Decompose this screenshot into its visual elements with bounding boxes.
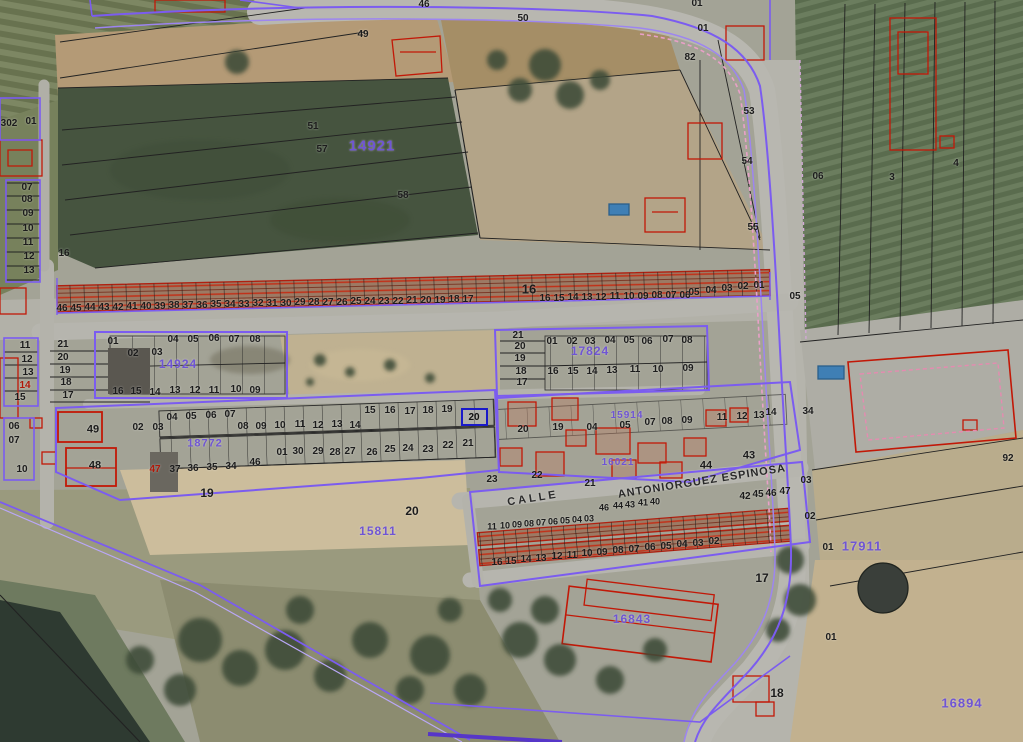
parcel-label: 10	[500, 522, 510, 531]
parcel-label: 31	[266, 299, 277, 309]
parcel-label: 01	[25, 117, 36, 127]
parcel-label: 10	[652, 365, 663, 375]
parcel-label: 30	[292, 447, 303, 457]
parcel-label: 21	[406, 296, 417, 306]
parcel-label: 15	[505, 557, 516, 567]
parcel-label: 24	[402, 444, 413, 454]
parcel-label: 20	[405, 505, 418, 517]
parcel-label: 20	[420, 296, 431, 306]
parcel-label: 04	[676, 540, 687, 550]
street-label: CALLE	[507, 490, 560, 509]
parcel-label: 10	[623, 292, 634, 302]
parcel-label: 03	[152, 423, 163, 433]
parcel-label: 10	[22, 224, 33, 234]
parcel-label: 18	[515, 367, 526, 377]
parcel-label: 13	[535, 554, 546, 564]
parcel-label: 47	[149, 465, 160, 475]
parcel-label: 37	[182, 301, 193, 311]
parcel-label: 16	[539, 294, 550, 304]
parcel-label: 03	[692, 539, 703, 549]
parcel-label: 35	[206, 463, 217, 473]
parcel-label: 20	[517, 425, 528, 435]
parcel-label: 46	[599, 504, 609, 513]
parcel-label: 44	[613, 502, 623, 511]
labels-layer: 3020107080910111213164946500101825157585…	[0, 0, 1023, 742]
parcel-label: 45	[70, 304, 81, 314]
parcel-label: 08	[651, 291, 662, 301]
parcel-label: 09	[249, 386, 260, 396]
parcel-label: 11	[610, 292, 621, 302]
parcel-label: 58	[397, 191, 408, 201]
block-label: 18772	[187, 439, 223, 450]
parcel-label: 42	[739, 492, 750, 502]
parcel-label: 43	[625, 501, 635, 510]
parcel-label: 46	[765, 489, 776, 499]
parcel-label: 41	[638, 499, 648, 508]
parcel-label: 15	[364, 406, 375, 416]
block-label: 15811	[359, 525, 397, 537]
parcel-label: 17	[755, 572, 768, 584]
parcel-label: 19	[514, 354, 525, 364]
parcel-label: 34	[224, 300, 235, 310]
parcel-label: 16	[547, 367, 558, 377]
parcel-label: 34	[225, 462, 236, 472]
block-label: 16894	[941, 697, 982, 710]
parcel-label: 35	[210, 300, 221, 310]
parcel-label: 38	[168, 301, 179, 311]
parcel-label: 06	[205, 411, 216, 421]
parcel-label: 19	[59, 366, 70, 376]
parcel-label: 11	[295, 420, 306, 430]
parcel-label: 04	[586, 423, 597, 433]
parcel-label: 42	[112, 303, 123, 313]
parcel-label: 11	[209, 386, 220, 396]
block-label: 17911	[842, 540, 882, 553]
parcel-label: 13	[169, 386, 180, 396]
parcel-label: 13	[22, 368, 33, 378]
parcel-label: 27	[344, 447, 355, 457]
parcel-label: 17	[462, 295, 473, 305]
parcel-label: 302	[1, 119, 18, 129]
parcel-label: 01	[546, 337, 557, 347]
parcel-label: 13	[581, 293, 592, 303]
parcel-label: 43	[743, 451, 755, 462]
parcel-label: 51	[307, 122, 318, 132]
parcel-label: 57	[316, 145, 327, 155]
parcel-label: 12	[736, 412, 747, 422]
parcel-label: 15	[14, 393, 25, 403]
block-label: 17824	[571, 345, 609, 357]
parcel-label: 44	[700, 461, 712, 472]
parcel-label: 07	[536, 519, 546, 528]
parcel-label: 82	[684, 53, 695, 63]
parcel-label: 08	[249, 335, 260, 345]
parcel-label: 02	[737, 282, 748, 292]
parcel-label: 09	[682, 364, 693, 374]
parcel-label: 47	[779, 487, 790, 497]
parcel-label: 48	[89, 461, 101, 472]
parcel-label: 37	[169, 465, 180, 475]
parcel-label: 12	[595, 293, 606, 303]
parcel-label: 18	[448, 295, 459, 305]
parcel-label: 4	[953, 159, 959, 169]
parcel-label: 07	[662, 335, 673, 345]
parcel-label: 04	[572, 516, 582, 525]
parcel-label: 07	[665, 291, 676, 301]
parcel-label: 16	[58, 249, 69, 259]
parcel-label: 02	[127, 349, 138, 359]
parcel-label: 40	[650, 498, 660, 507]
parcel-label: 07	[644, 418, 655, 428]
parcel-label: 05	[660, 542, 671, 552]
parcel-label: 06	[644, 543, 655, 553]
parcel-label: 09	[596, 548, 607, 558]
parcel-label: 04	[167, 335, 178, 345]
parcel-label: 12	[23, 252, 34, 262]
block-label: 15914	[611, 411, 644, 421]
parcel-label: 06	[812, 172, 823, 182]
parcel-label: 29	[294, 298, 305, 308]
parcel-label: 32	[252, 299, 263, 309]
parcel-label: 02	[708, 537, 719, 547]
parcel-label: 36	[187, 464, 198, 474]
parcel-label: 01	[691, 0, 702, 9]
parcel-label: 07	[628, 545, 639, 555]
parcel-label: 06	[208, 334, 219, 344]
parcel-label: 10	[274, 421, 285, 431]
parcel-label: 17	[516, 378, 527, 388]
parcel-label: 23	[422, 445, 433, 455]
parcel-label: 05	[619, 421, 630, 431]
parcel-label: 23	[378, 297, 389, 307]
parcel-label: 15	[567, 367, 578, 377]
parcel-label: 03	[721, 284, 732, 294]
parcel-label: 10	[581, 549, 592, 559]
parcel-label: 20	[514, 342, 525, 352]
parcel-label: 17	[62, 391, 73, 401]
parcel-label: 03	[584, 515, 594, 524]
parcel-label: 22	[531, 471, 542, 481]
parcel-label: 13	[606, 366, 617, 376]
parcel-label: 45	[752, 490, 763, 500]
parcel-label: 19	[200, 487, 213, 499]
parcel-label: 08	[612, 546, 623, 556]
parcel-label: 18	[422, 406, 433, 416]
parcel-label: 07	[228, 335, 239, 345]
parcel-label: 11	[20, 341, 31, 351]
parcel-label: 13	[331, 420, 342, 430]
parcel-label: 16	[491, 558, 502, 568]
parcel-label: 44	[84, 303, 95, 313]
parcel-label: 10	[230, 385, 241, 395]
parcel-label: 10	[16, 465, 27, 475]
parcel-label: 25	[384, 445, 395, 455]
parcel-label: 13	[753, 411, 764, 421]
parcel-label: 07	[21, 183, 32, 193]
parcel-label: 46	[56, 304, 67, 314]
parcel-label: 08	[237, 422, 248, 432]
block-label: 16021	[602, 458, 635, 468]
block-label: 14924	[159, 358, 197, 370]
parcel-label: 14	[567, 293, 578, 303]
parcel-label: 11	[717, 413, 728, 423]
parcel-label: 08	[681, 336, 692, 346]
parcel-label: 14	[520, 555, 531, 565]
parcel-label: 21	[462, 439, 473, 449]
parcel-label: 29	[312, 447, 323, 457]
parcel-label: 12	[21, 355, 32, 365]
parcel-label: 13	[23, 266, 34, 276]
parcel-label: 14	[765, 408, 776, 418]
parcel-label: 08	[524, 520, 534, 529]
parcel-label: 16	[522, 283, 536, 296]
parcel-label: 16	[384, 406, 395, 416]
parcel-label: 26	[366, 448, 377, 458]
parcel-label: 41	[126, 302, 137, 312]
parcel-label: 07	[224, 410, 235, 420]
parcel-label: 09	[22, 209, 33, 219]
parcel-label: 01	[753, 281, 764, 291]
parcel-label: 01	[107, 337, 118, 347]
parcel-label: 54	[741, 157, 752, 167]
parcel-label: 05	[187, 335, 198, 345]
parcel-label: 15	[553, 294, 564, 304]
parcel-label: 14	[19, 381, 30, 391]
parcel-label: 30	[280, 299, 291, 309]
parcel-label: 23	[486, 475, 497, 485]
parcel-label: 05	[789, 292, 800, 302]
parcel-label: 12	[551, 552, 562, 562]
parcel-label: 08	[21, 195, 32, 205]
parcel-label: 39	[154, 302, 165, 312]
parcel-label: 01	[276, 448, 287, 458]
parcel-label: 02	[132, 423, 143, 433]
parcel-label: 07	[8, 436, 19, 446]
parcel-label: 26	[336, 298, 347, 308]
parcel-label: 05	[688, 288, 699, 298]
parcel-label: 14	[586, 367, 597, 377]
block-label: 14921	[349, 139, 396, 154]
parcel-label: 46	[249, 458, 260, 468]
parcel-label: 01	[825, 633, 836, 643]
parcel-label: 05	[185, 412, 196, 422]
block-label: 16843	[613, 613, 651, 625]
parcel-label: 50	[517, 14, 528, 24]
parcel-label: 05	[560, 517, 570, 526]
parcel-label: 53	[743, 107, 754, 117]
parcel-label: 28	[329, 448, 340, 458]
parcel-label: 40	[140, 302, 151, 312]
parcel-label: 14	[349, 421, 360, 431]
parcel-label: 16	[112, 387, 123, 397]
parcel-label: 3	[889, 173, 895, 183]
parcel-label: 02	[804, 512, 815, 522]
parcel-label: 09	[681, 416, 692, 426]
parcel-label: 22	[442, 441, 453, 451]
parcel-label: 09	[255, 422, 266, 432]
parcel-label: 11	[23, 238, 34, 248]
parcel-label: 34	[802, 407, 813, 417]
parcel-label: 06	[548, 518, 558, 527]
parcel-label: 27	[322, 298, 333, 308]
parcel-label: 21	[512, 331, 523, 341]
parcel-label: 15	[130, 387, 141, 397]
parcel-label: 43	[98, 303, 109, 313]
parcel-label: 11	[567, 551, 578, 561]
parcel-label: 19	[552, 423, 563, 433]
parcel-label: 21	[584, 479, 595, 489]
parcel-label: 46	[418, 0, 429, 10]
parcel-label: 17	[404, 407, 415, 417]
parcel-label: 14	[149, 388, 160, 398]
parcel-label: 04	[705, 286, 716, 296]
parcel-label: 28	[308, 298, 319, 308]
parcel-label: 49	[357, 30, 368, 40]
parcel-label: 24	[364, 297, 375, 307]
parcel-label: 03	[800, 476, 811, 486]
parcel-label: 92	[1002, 454, 1013, 464]
parcel-label: 04	[166, 413, 177, 423]
parcel-label: 19	[434, 296, 445, 306]
parcel-label: 09	[512, 521, 522, 530]
parcel-label: 55	[747, 223, 758, 233]
parcel-label: 11	[630, 365, 641, 375]
parcel-label: 20	[57, 353, 68, 363]
parcel-label: 18	[770, 687, 783, 699]
parcel-label: 49	[87, 425, 99, 436]
parcel-label: 21	[57, 340, 68, 350]
parcel-label: 06	[641, 337, 652, 347]
parcel-label: 12	[189, 386, 200, 396]
parcel-label: 11	[487, 523, 497, 532]
parcel-label: 08	[661, 417, 672, 427]
parcel-label: 18	[60, 378, 71, 388]
parcel-label: 01	[697, 24, 708, 34]
parcel-label: 33	[238, 300, 249, 310]
parcel-label: 09	[637, 292, 648, 302]
parcel-label: 19	[441, 405, 452, 415]
parcel-label: 01	[822, 543, 833, 553]
parcel-label: 12	[312, 421, 323, 431]
parcel-label: 05	[623, 336, 634, 346]
parcel-label: 22	[392, 297, 403, 307]
parcel-label: 36	[196, 301, 207, 311]
parcel-label: 25	[350, 297, 361, 307]
map-canvas[interactable]: 20 3020107080910111213164946500101825157…	[0, 0, 1023, 742]
parcel-label: 06	[8, 422, 19, 432]
